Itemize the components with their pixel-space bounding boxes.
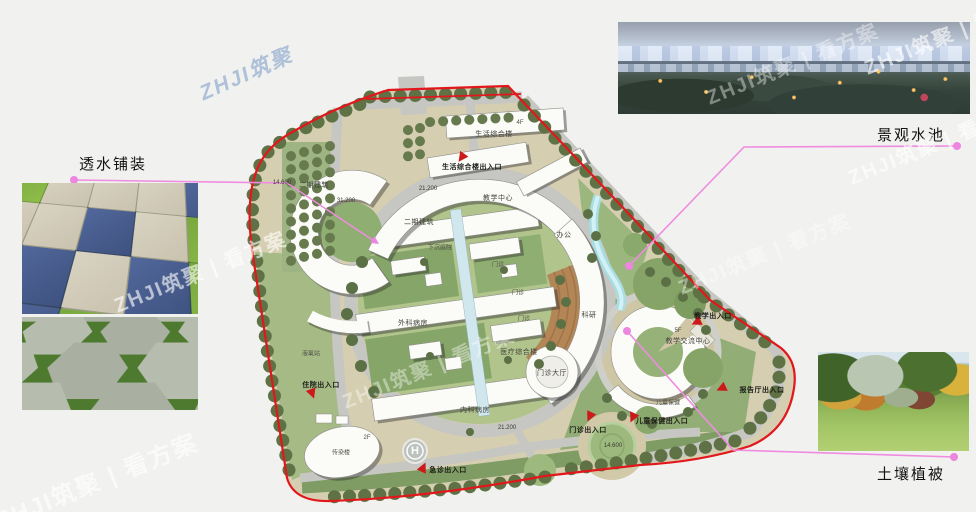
callout-label-permeable: 透水铺装 [79, 153, 147, 174]
garden-shrubs-overlay [818, 352, 969, 451]
helipad-icon [403, 439, 427, 463]
permeable-paving-photo [22, 183, 198, 314]
callout-line-pool [629, 146, 957, 266]
callout-label-pool: 景观水池 [877, 124, 945, 145]
soil-vegetation-photo [818, 352, 969, 451]
analysis-diagram-canvas: 透水铺装 景观水池 土壤植被 生活综合楼 4F 生活综合楼出入口 教学中心 二期… [0, 0, 976, 512]
pool-lights-overlay [618, 22, 970, 114]
hexagon-paving-photo [22, 317, 198, 410]
permeable-checker-board [22, 183, 198, 314]
callout-label-soil: 土壤植被 [877, 463, 945, 484]
landscape-pool-photo [618, 22, 970, 114]
hex-paver-board [22, 317, 198, 410]
